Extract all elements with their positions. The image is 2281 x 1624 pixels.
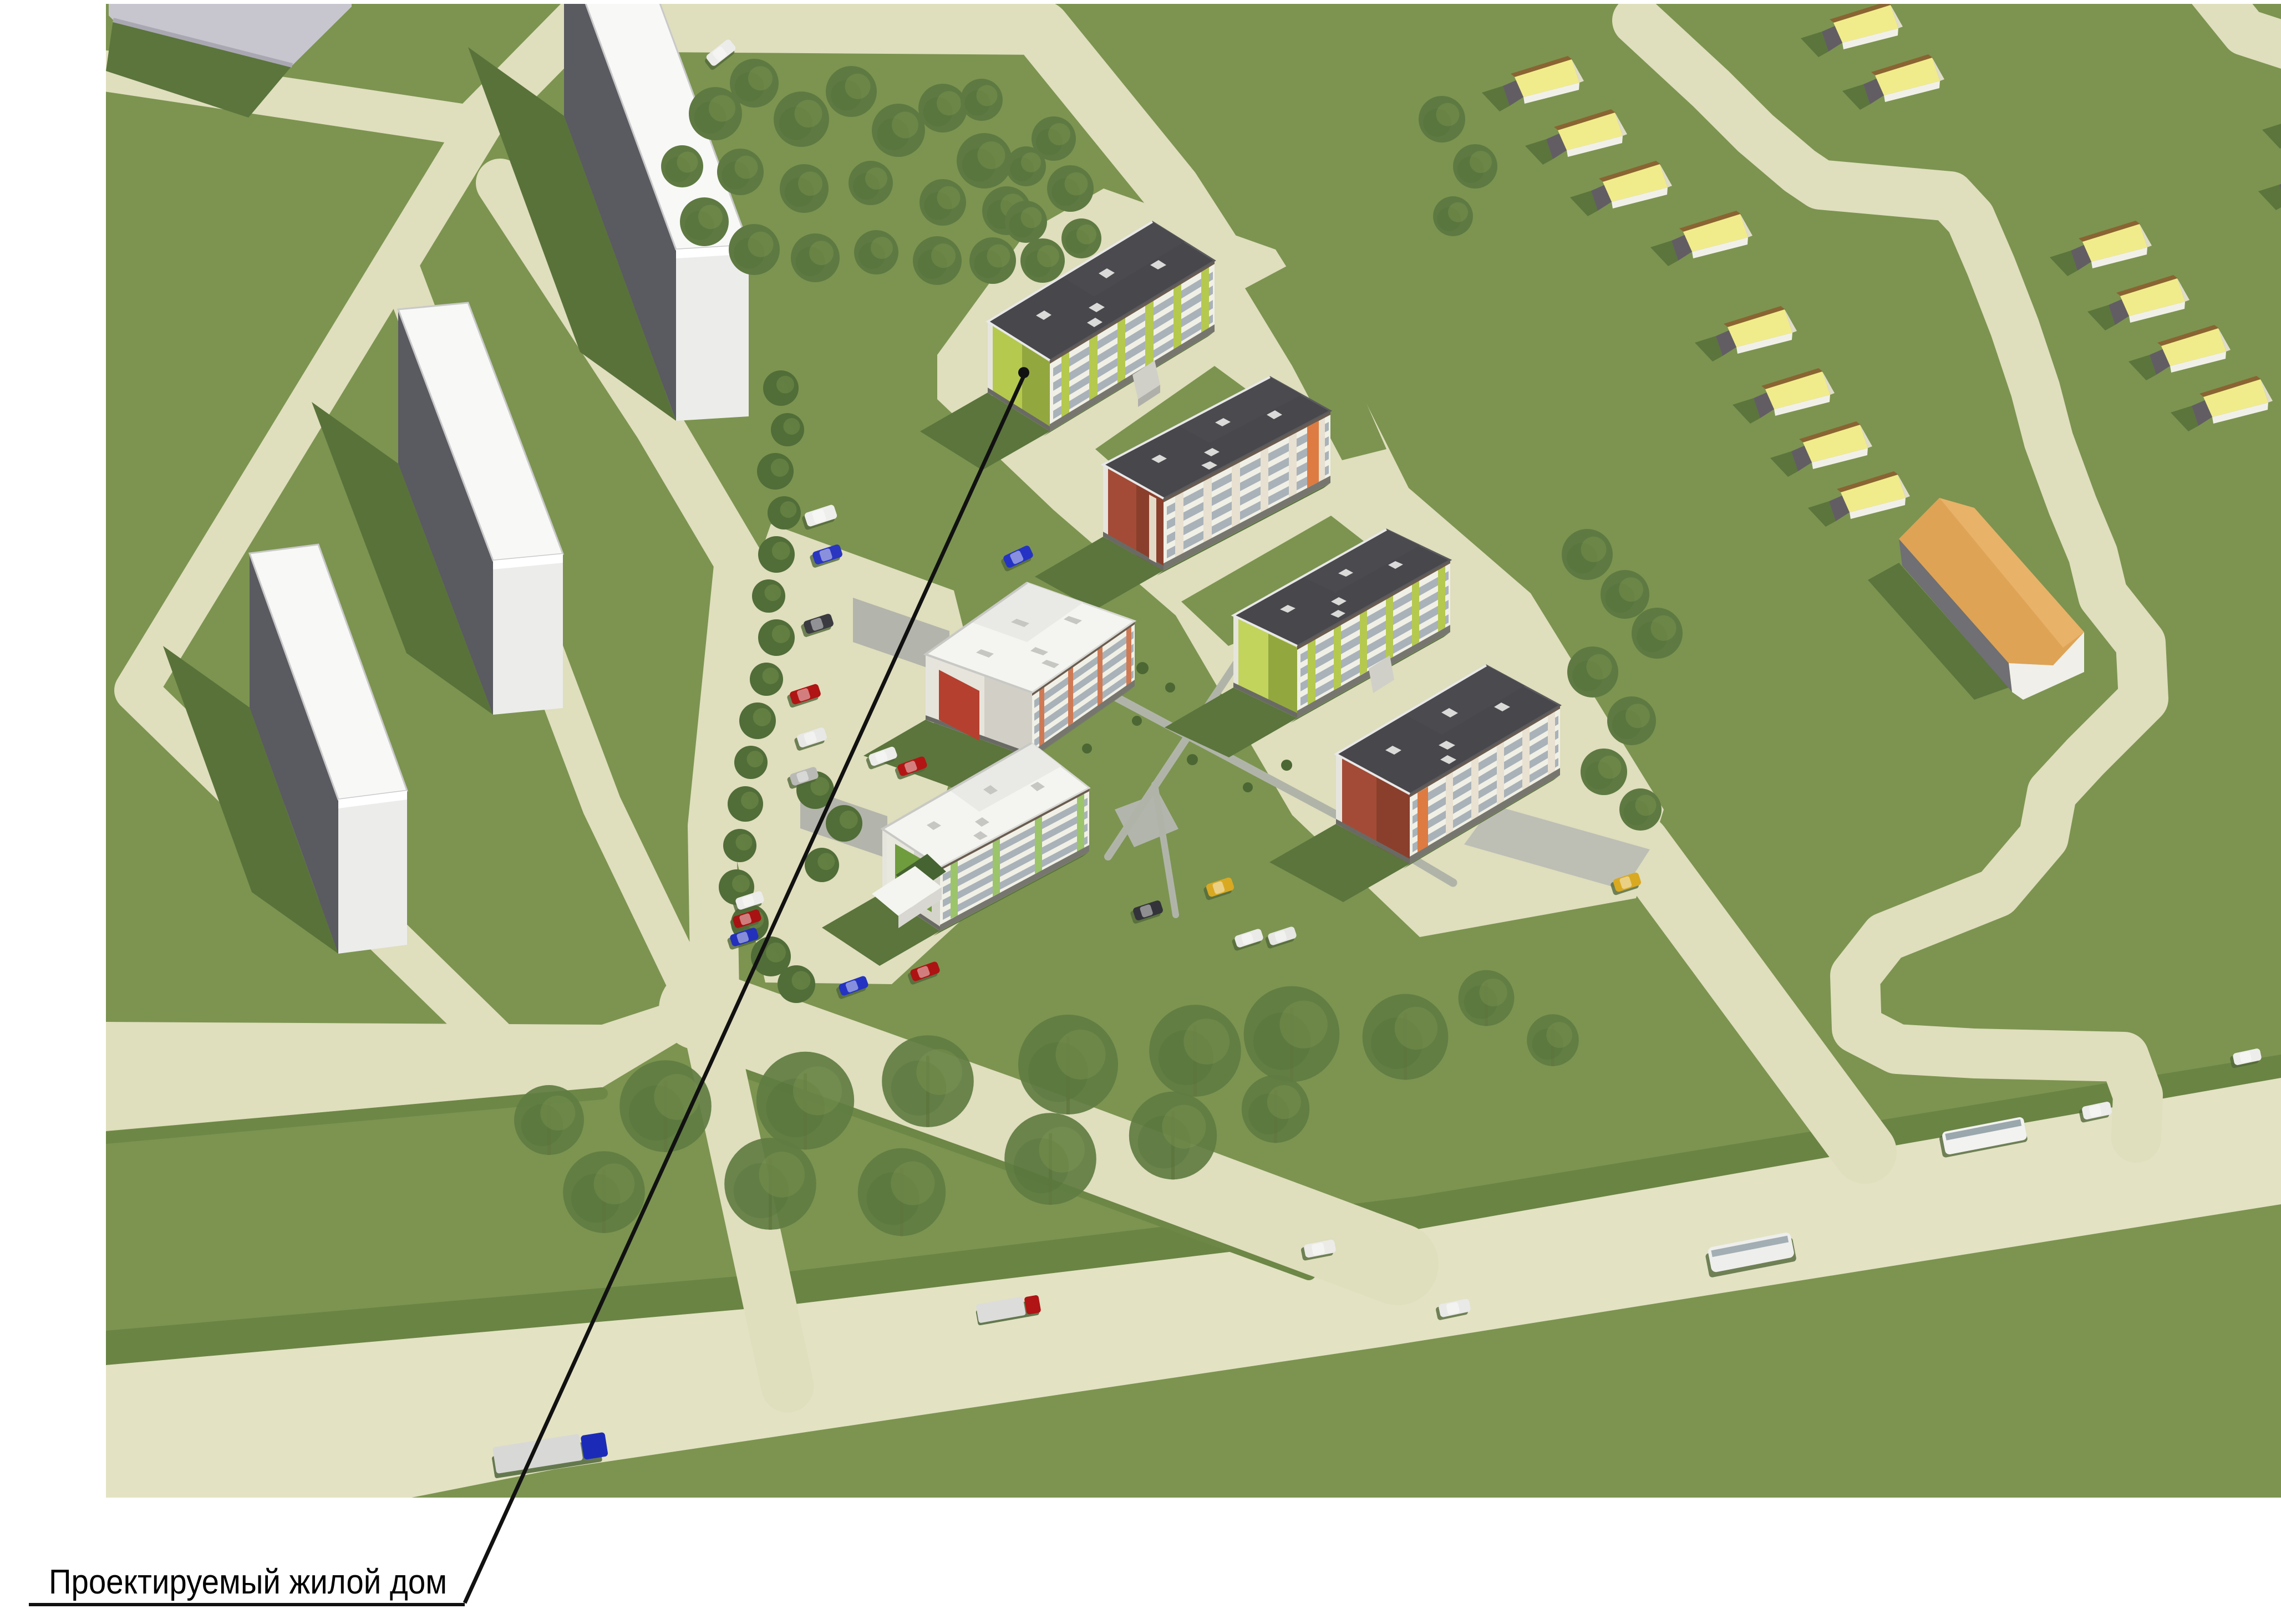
svg-text:Проектируемый жилой дом: Проектируемый жилой дом <box>49 1563 447 1601</box>
